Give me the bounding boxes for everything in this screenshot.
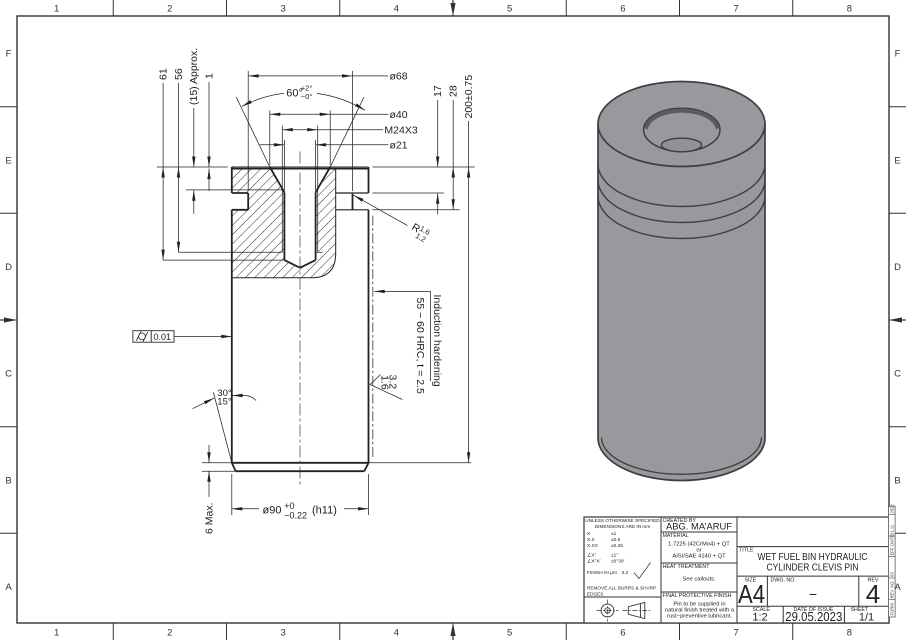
svg-text:FINISH IN µm: FINISH IN µm: [587, 570, 617, 576]
svg-text:REMOVE ALL BURRS & SHARP: REMOVE ALL BURRS & SHARP: [587, 586, 656, 591]
svg-text:7: 7: [733, 4, 738, 15]
svg-text:28: 28: [448, 85, 460, 97]
svg-text:03: 03: [890, 572, 895, 577]
svg-text:1:2: 1:2: [752, 612, 767, 624]
svg-text:B: B: [894, 475, 900, 486]
svg-text:6: 6: [620, 628, 625, 639]
svg-text:FINAL PROTECTIVE FINISH: FINAL PROTECTIVE FINISH: [663, 593, 732, 599]
svg-text:E: E: [894, 155, 900, 166]
svg-text:FORM: FORM: [890, 603, 895, 616]
svg-text:E: E: [5, 155, 11, 166]
svg-text:X.X: X.X: [587, 537, 596, 543]
svg-text:4: 4: [866, 579, 880, 609]
svg-text:4: 4: [394, 4, 399, 15]
svg-text:C: C: [5, 369, 12, 380]
svg-text:(15) Approx.: (15) Approx.: [188, 48, 200, 105]
svg-text:2: 2: [167, 4, 172, 15]
svg-text:D: D: [894, 262, 901, 273]
svg-text:See callouts.: See callouts.: [682, 577, 716, 583]
svg-text:2022: 2022: [890, 504, 895, 514]
svg-text:8: 8: [847, 628, 852, 639]
svg-text:WET FUEL BIN HYDRAULIC: WET FUEL BIN HYDRAULIC: [758, 552, 868, 563]
svg-text:M24X3: M24X3: [384, 124, 417, 136]
svg-text:ø68: ø68: [390, 71, 408, 83]
svg-text:Induction hardening: Induction hardening: [431, 295, 443, 387]
svg-text:ø40: ø40: [390, 109, 408, 121]
svg-text:C: C: [894, 369, 901, 380]
svg-text:±0°30′: ±0°30′: [611, 559, 625, 565]
svg-text:HEAT TREATMENT: HEAT TREATMENT: [663, 564, 711, 570]
svg-text:EDGES: EDGES: [587, 592, 603, 597]
svg-text:CYLINDER CLEVIS PIN: CYLINDER CLEVIS PIN: [767, 563, 859, 574]
svg-text:EFF. DATE: EFF. DATE: [890, 535, 895, 556]
svg-text:ABG. MA’ARUF: ABG. MA’ARUF: [666, 521, 732, 532]
svg-text:1: 1: [203, 73, 215, 79]
svg-text:1: 1: [54, 4, 59, 15]
svg-text:3: 3: [280, 628, 285, 639]
svg-text:A: A: [5, 582, 12, 593]
svg-text:55 − 60 HRC, t = 2.5: 55 − 60 HRC, t = 2.5: [414, 298, 426, 394]
svg-text:5: 5: [507, 4, 512, 15]
svg-text:1.6: 1.6: [378, 375, 390, 390]
svg-text:−0°: −0°: [301, 92, 313, 101]
svg-text:2: 2: [167, 628, 172, 639]
svg-text:−0.22: −0.22: [284, 510, 307, 520]
svg-text:29.05.2023: 29.05.2023: [785, 610, 842, 624]
svg-text:01.11: 01.11: [890, 524, 895, 535]
svg-text:+0: +0: [284, 501, 294, 511]
svg-text:UNLESS OTHERWISE SPECIFIED: UNLESS OTHERWISE SPECIFIED: [585, 518, 660, 523]
svg-text:rust−preventive lubricant.: rust−preventive lubricant.: [667, 614, 732, 620]
svg-text:∠X°: ∠X°: [587, 553, 596, 559]
svg-text:56: 56: [173, 68, 185, 80]
svg-text:1/1: 1/1: [859, 612, 874, 624]
svg-text:8: 8: [847, 4, 852, 15]
svg-text:A4: A4: [738, 579, 765, 609]
svg-text:±1: ±1: [611, 531, 617, 537]
svg-text:F: F: [6, 49, 12, 60]
svg-text:5: 5: [507, 628, 512, 639]
svg-text:AISI/SAE 4140 + QT: AISI/SAE 4140 + QT: [672, 554, 726, 560]
svg-text:DWG. NO.: DWG. NO.: [771, 578, 796, 584]
svg-text:3: 3: [280, 4, 285, 15]
svg-text:6 Max.: 6 Max.: [203, 502, 215, 534]
svg-text:200±0.75: 200±0.75: [463, 75, 475, 119]
svg-text:1: 1: [54, 628, 59, 639]
svg-text:4: 4: [394, 628, 399, 639]
svg-text:15°: 15°: [217, 396, 232, 407]
svg-text:TITLE: TITLE: [739, 548, 754, 554]
svg-text:±1°: ±1°: [611, 553, 618, 559]
svg-text:+2°: +2°: [301, 84, 313, 93]
svg-text:MATERIAL: MATERIAL: [663, 533, 689, 539]
svg-text:DIMENSIONS ARE IN mm: DIMENSIONS ARE IN mm: [595, 524, 651, 529]
svg-text:(h11): (h11): [312, 505, 337, 517]
svg-text:X.XX: X.XX: [587, 543, 599, 549]
svg-text:61: 61: [158, 68, 170, 80]
svg-text:0.01: 0.01: [154, 332, 172, 342]
svg-text:7: 7: [733, 628, 738, 639]
svg-text:3.2: 3.2: [622, 570, 629, 576]
svg-text:D: D: [5, 262, 12, 273]
svg-text:ø90: ø90: [263, 505, 282, 517]
svg-text:F: F: [895, 49, 901, 60]
svg-text:17: 17: [432, 85, 444, 97]
svg-text:REV. NO.: REV. NO.: [890, 581, 895, 599]
svg-text:±0.5: ±0.5: [611, 537, 621, 543]
svg-text:6: 6: [620, 4, 625, 15]
svg-text:∠X°X′: ∠X°X′: [587, 559, 601, 565]
svg-text:B: B: [5, 475, 11, 486]
svg-text:ø21: ø21: [390, 140, 408, 152]
svg-text:−: −: [809, 586, 817, 602]
svg-text:±0.25: ±0.25: [611, 543, 623, 549]
